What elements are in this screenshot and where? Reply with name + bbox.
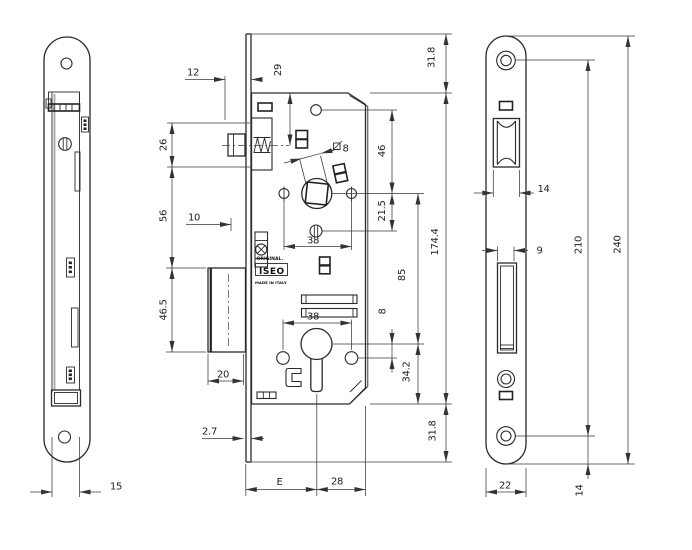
rivet-slot-1 [82, 117, 89, 132]
dim-bolt-slot-width: 9 [482, 246, 543, 262]
dim-backset-row: E 28 [246, 394, 366, 496]
dim-hole-to-follower: 46 [377, 110, 392, 194]
dim-plate-height: 240 [613, 36, 629, 464]
cyl-screw-left [277, 352, 290, 365]
dim-follower-square-label: 8 [343, 144, 349, 155]
lock-technical-drawing: 15 [0, 0, 692, 550]
brand-block: ORIGINAL. ISEO MADE IN ITALY [255, 256, 288, 285]
dim-plate-width: 22 [486, 468, 526, 497]
follower-screw-left [279, 187, 289, 202]
dim-follower-to-cyl: 85 [397, 194, 418, 345]
dim-plate-thickness: 2.7 [202, 427, 264, 439]
cyl-screw-right [345, 352, 358, 365]
dim-case-depth: 15 [30, 437, 122, 497]
dim-bolt-slot-width-label: 9 [537, 246, 543, 257]
stacked-tabs-c [320, 257, 331, 274]
dim-latch-axis: 29 [273, 64, 290, 146]
follower-hub [302, 179, 332, 209]
dim-latch-height: 26 [159, 123, 253, 167]
dim-follower-to-screw: 21.5 [377, 194, 392, 232]
dim-backset-label: E [277, 477, 283, 488]
euro-cylinder-hole [301, 329, 332, 392]
top-left-tab [258, 103, 272, 111]
stacked-tabs-a [296, 131, 308, 149]
dim-plate-thickness-label: 2.7 [202, 427, 217, 438]
stacked-tabs-b [333, 164, 348, 183]
lock-case-view: ORIGINAL. ISEO MADE IN ITALY [159, 34, 453, 496]
dim-latch-to-bolt-label: 56 [159, 210, 170, 222]
bottom-screw-hole [497, 427, 516, 446]
dim-case-depth-label: 15 [110, 482, 122, 493]
dim-screw-to-end: 14 [575, 436, 589, 497]
lower-slot [500, 392, 513, 400]
dim-follower-square: 8 [284, 141, 349, 184]
deadbolt [208, 268, 246, 352]
brand-original: ORIGINAL. [257, 256, 284, 262]
brand-logo: ISEO [259, 267, 285, 277]
brand-made-in: MADE IN ITALY [255, 280, 287, 285]
dim-roller-width-label: 14 [538, 184, 550, 195]
dim-screw-to-end-label: 14 [575, 484, 586, 496]
dim-latch-height-label: 26 [159, 139, 170, 151]
dim-follower-screws-label: 38 [307, 236, 319, 247]
dim-bolt-throw-label: 20 [217, 370, 229, 381]
cylinder-screw-hole [498, 371, 515, 388]
roller-latch-window [493, 119, 519, 168]
dim-plate-height-label: 240 [613, 235, 624, 253]
rivet-slot-3 [67, 367, 75, 383]
dim-cyl-to-screw-label: 8 [378, 308, 389, 314]
side-slot-2 [72, 308, 79, 347]
latch-bolt [222, 118, 289, 170]
bottom-vent [257, 392, 276, 399]
dim-plate-width-label: 22 [499, 481, 511, 492]
dim-bolt-throw: 20 [208, 354, 244, 385]
dim-bolt-height-label: 46.5 [159, 299, 170, 320]
dim-cyl-to-screw: 8 [378, 308, 393, 372]
faceplate-edge [246, 34, 251, 462]
dim-bottom-margin: 31.8 [428, 404, 447, 462]
dim-hole-to-follower-label: 46 [377, 145, 388, 157]
dim-case-height: 174.4 [430, 93, 446, 404]
top-screw-hole [61, 58, 72, 69]
dim-roller-width: 14 [474, 170, 550, 197]
top-fixing-hole [311, 105, 322, 116]
dim-latch-front-label: 12 [187, 68, 199, 79]
dim-latch-axis-label: 29 [273, 64, 284, 76]
faceplate-front-view: 14 9 22 [474, 36, 635, 497]
latch-bolt-side [46, 92, 80, 111]
dim-case-height-label: 174.4 [430, 228, 441, 255]
deadbolt-slot [498, 263, 517, 353]
dim-follower-to-cyl-label: 85 [397, 269, 408, 281]
bottom-screw-hole [59, 431, 71, 443]
dim-bottom-margin-label: 31.8 [428, 420, 439, 441]
aux-slot [500, 102, 513, 111]
dim-latch-to-bolt: 56 [159, 167, 173, 268]
bottom-retainer-block [52, 390, 81, 406]
dim-case-back-label: 28 [331, 477, 343, 488]
rivet-slot-2 [67, 258, 75, 277]
dim-screw-centers: 210 [574, 60, 589, 436]
faceplate-side-view: 15 [30, 37, 122, 497]
dim-top-margin: 31.8 [427, 34, 447, 93]
dim-bolt-height: 46.5 [159, 268, 207, 352]
chamfer-accent [350, 381, 362, 393]
top-screw-hole [497, 51, 516, 70]
dim-cyl-to-bottom: 34.2 [402, 344, 419, 404]
dim-cyl-screws-label: 38 [307, 312, 319, 323]
dim-top-margin-label: 31.8 [427, 47, 438, 68]
cylinder-clip [286, 369, 301, 387]
dim-cyl-to-bottom-label: 34.2 [402, 361, 413, 382]
dim-aux-throw-label: 10 [188, 213, 200, 224]
dim-screw-centers-label: 210 [574, 236, 585, 254]
dim-aux-throw: 10 [186, 213, 231, 232]
adjust-screw [59, 138, 72, 151]
dim-follower-to-screw-label: 21.5 [377, 200, 388, 221]
